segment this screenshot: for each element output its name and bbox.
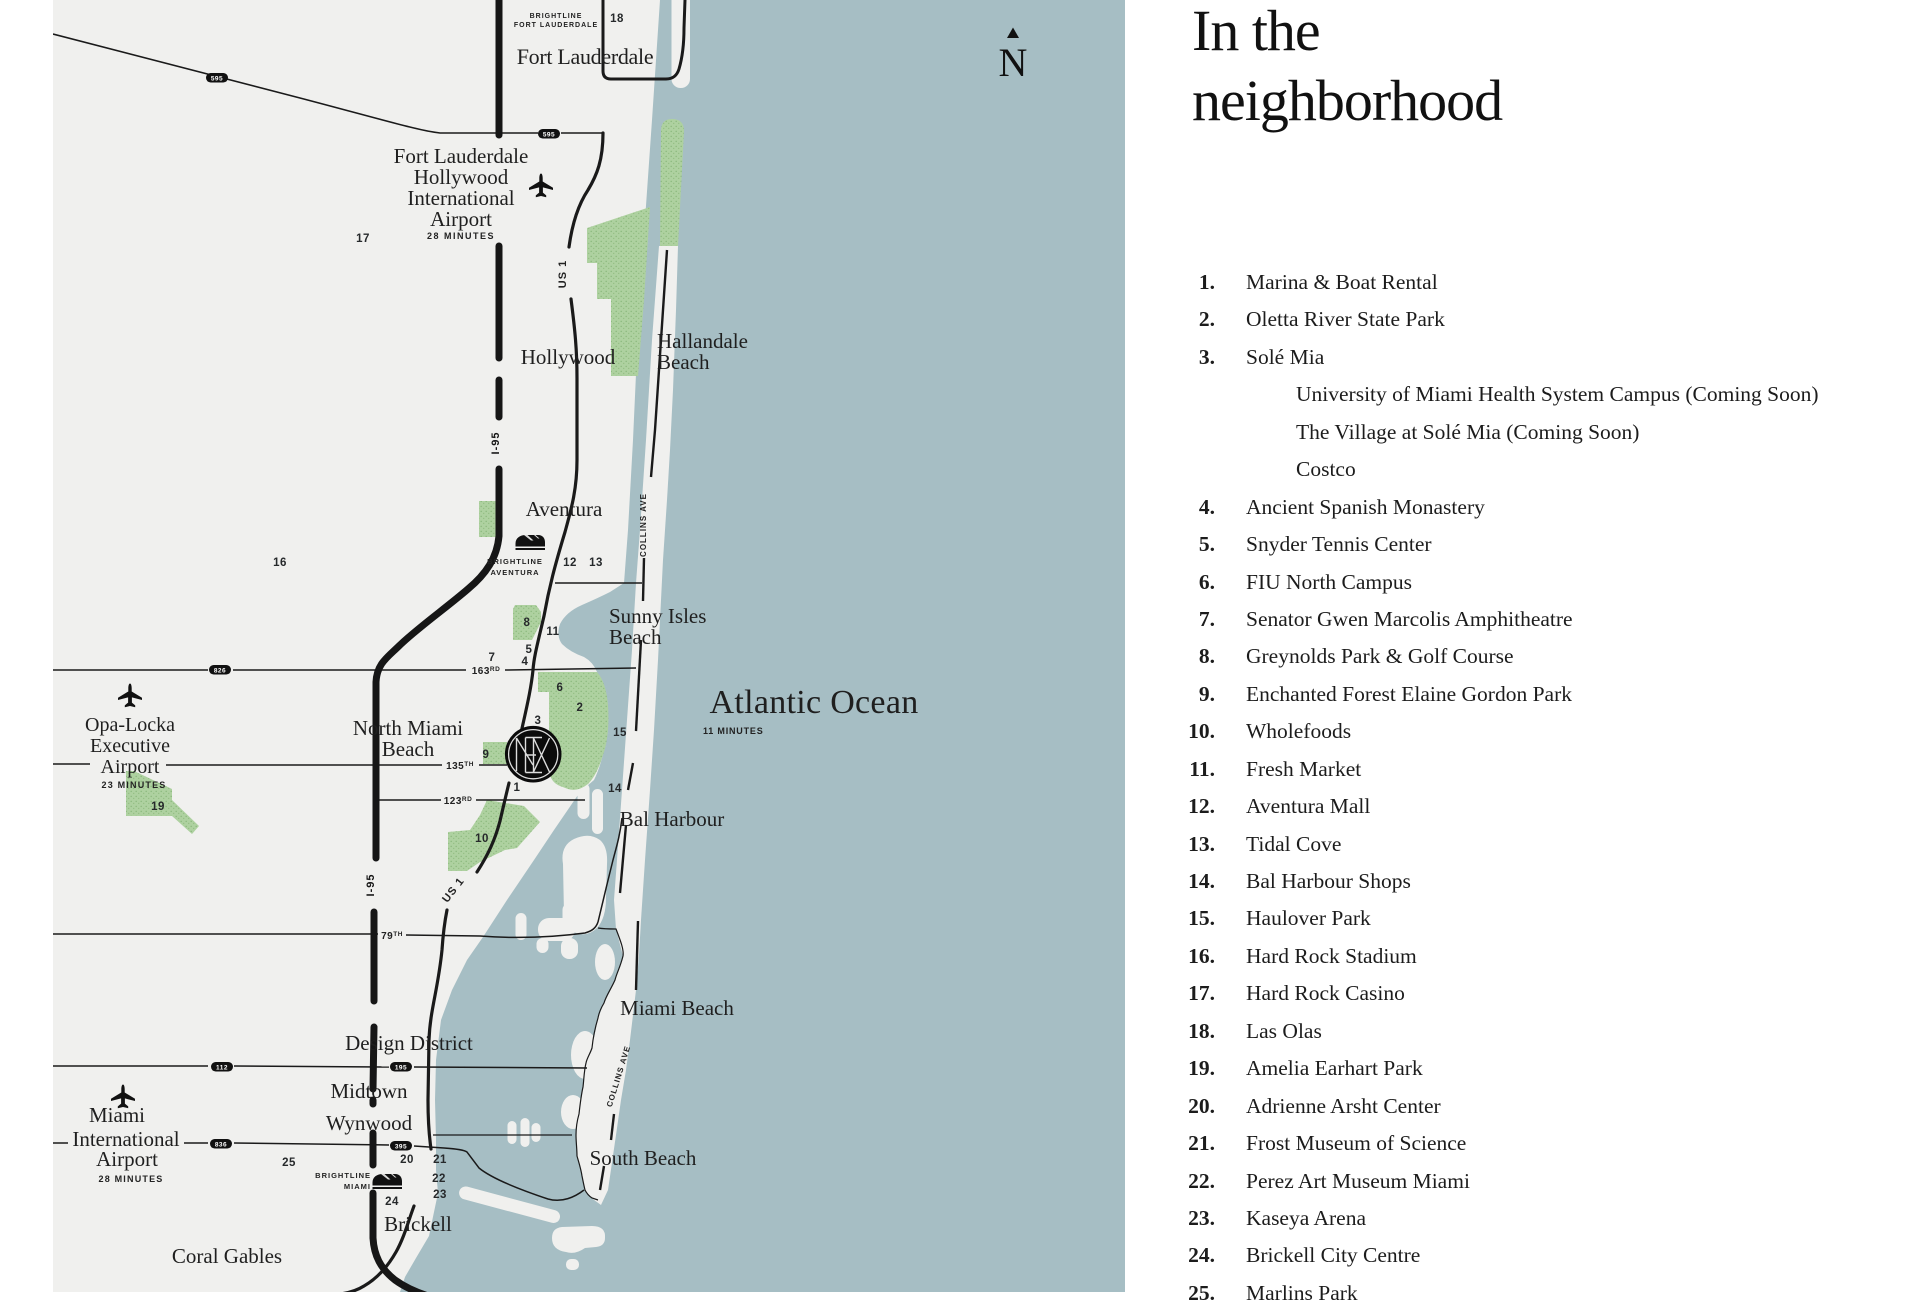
svg-text:22: 22 <box>432 1173 446 1185</box>
svg-text:Airport: Airport <box>96 1147 158 1171</box>
svg-text:5: 5 <box>526 644 533 656</box>
svg-text:13: 13 <box>589 557 603 569</box>
svg-text:18: 18 <box>610 13 624 25</box>
svg-text:6: 6 <box>557 682 564 694</box>
svg-text:US 1: US 1 <box>557 260 569 288</box>
svg-text:2: 2 <box>577 702 584 714</box>
svg-text:Coral Gables: Coral Gables <box>172 1244 282 1268</box>
svg-text:23: 23 <box>433 1189 447 1201</box>
svg-text:Airport: Airport <box>101 756 160 778</box>
svg-text:20: 20 <box>400 1154 414 1166</box>
svg-text:28 MINUTES: 28 MINUTES <box>98 1174 163 1184</box>
svg-text:595: 595 <box>543 131 555 138</box>
svg-text:N: N <box>999 40 1028 85</box>
svg-text:FORT LAUDERDALE: FORT LAUDERDALE <box>514 22 598 29</box>
svg-text:28 MINUTES: 28 MINUTES <box>427 231 495 241</box>
svg-text:Executive: Executive <box>90 735 170 757</box>
svg-text:I-95: I-95 <box>365 874 377 897</box>
svg-text:23 MINUTES: 23 MINUTES <box>101 780 166 790</box>
svg-text:MIAMI: MIAMI <box>344 1182 371 1191</box>
svg-text:Miami: Miami <box>89 1103 145 1127</box>
svg-text:Wynwood: Wynwood <box>326 1111 413 1135</box>
svg-text:Airport: Airport <box>430 207 492 231</box>
svg-text:South Beach: South Beach <box>590 1146 697 1170</box>
svg-text:Miami Beach: Miami Beach <box>620 996 734 1020</box>
svg-text:595: 595 <box>211 75 223 82</box>
svg-text:8: 8 <box>524 617 531 629</box>
svg-text:Bal Harbour: Bal Harbour <box>620 807 724 831</box>
svg-text:17: 17 <box>356 233 370 245</box>
svg-text:Atlantic Ocean: Atlantic Ocean <box>709 684 918 721</box>
svg-text:826: 826 <box>214 667 226 674</box>
svg-text:4: 4 <box>522 656 529 668</box>
svg-text:14: 14 <box>608 783 622 795</box>
svg-text:11 MINUTES: 11 MINUTES <box>703 726 764 736</box>
svg-text:19: 19 <box>151 801 165 813</box>
svg-text:Hollywood: Hollywood <box>521 345 616 369</box>
svg-text:Fort Lauderdale: Fort Lauderdale <box>517 44 654 69</box>
svg-text:Brickell: Brickell <box>384 1212 452 1236</box>
svg-text:AVENTURA: AVENTURA <box>490 568 539 577</box>
svg-text:395: 395 <box>395 1143 407 1150</box>
svg-text:COLLINS AVE: COLLINS AVE <box>639 493 648 557</box>
svg-text:3: 3 <box>535 715 542 727</box>
svg-text:Midtown: Midtown <box>330 1079 408 1103</box>
svg-text:21: 21 <box>433 1154 447 1166</box>
svg-text:15: 15 <box>613 727 627 739</box>
svg-text:Opa-Locka: Opa-Locka <box>85 714 175 736</box>
svg-text:24: 24 <box>385 1196 399 1208</box>
svg-text:12: 12 <box>563 557 577 569</box>
svg-text:Beach: Beach <box>382 737 435 761</box>
svg-text:25: 25 <box>282 1157 296 1169</box>
svg-text:Design District: Design District <box>345 1031 473 1055</box>
svg-text:Aventura: Aventura <box>526 497 603 521</box>
svg-text:I-95: I-95 <box>490 432 502 455</box>
svg-text:836: 836 <box>215 1141 227 1148</box>
svg-text:9: 9 <box>483 749 490 761</box>
svg-text:11: 11 <box>546 626 559 638</box>
svg-text:195: 195 <box>395 1064 407 1071</box>
svg-text:10: 10 <box>475 833 489 845</box>
svg-text:BRIGHTLINE: BRIGHTLINE <box>530 13 583 20</box>
svg-text:7: 7 <box>489 652 496 664</box>
svg-text:BRIGHTLINE: BRIGHTLINE <box>315 1171 371 1180</box>
svg-text:112: 112 <box>216 1064 228 1071</box>
svg-text:BRIGHTLINE: BRIGHTLINE <box>487 557 543 566</box>
svg-text:1: 1 <box>514 782 521 794</box>
svg-text:16: 16 <box>273 557 287 569</box>
